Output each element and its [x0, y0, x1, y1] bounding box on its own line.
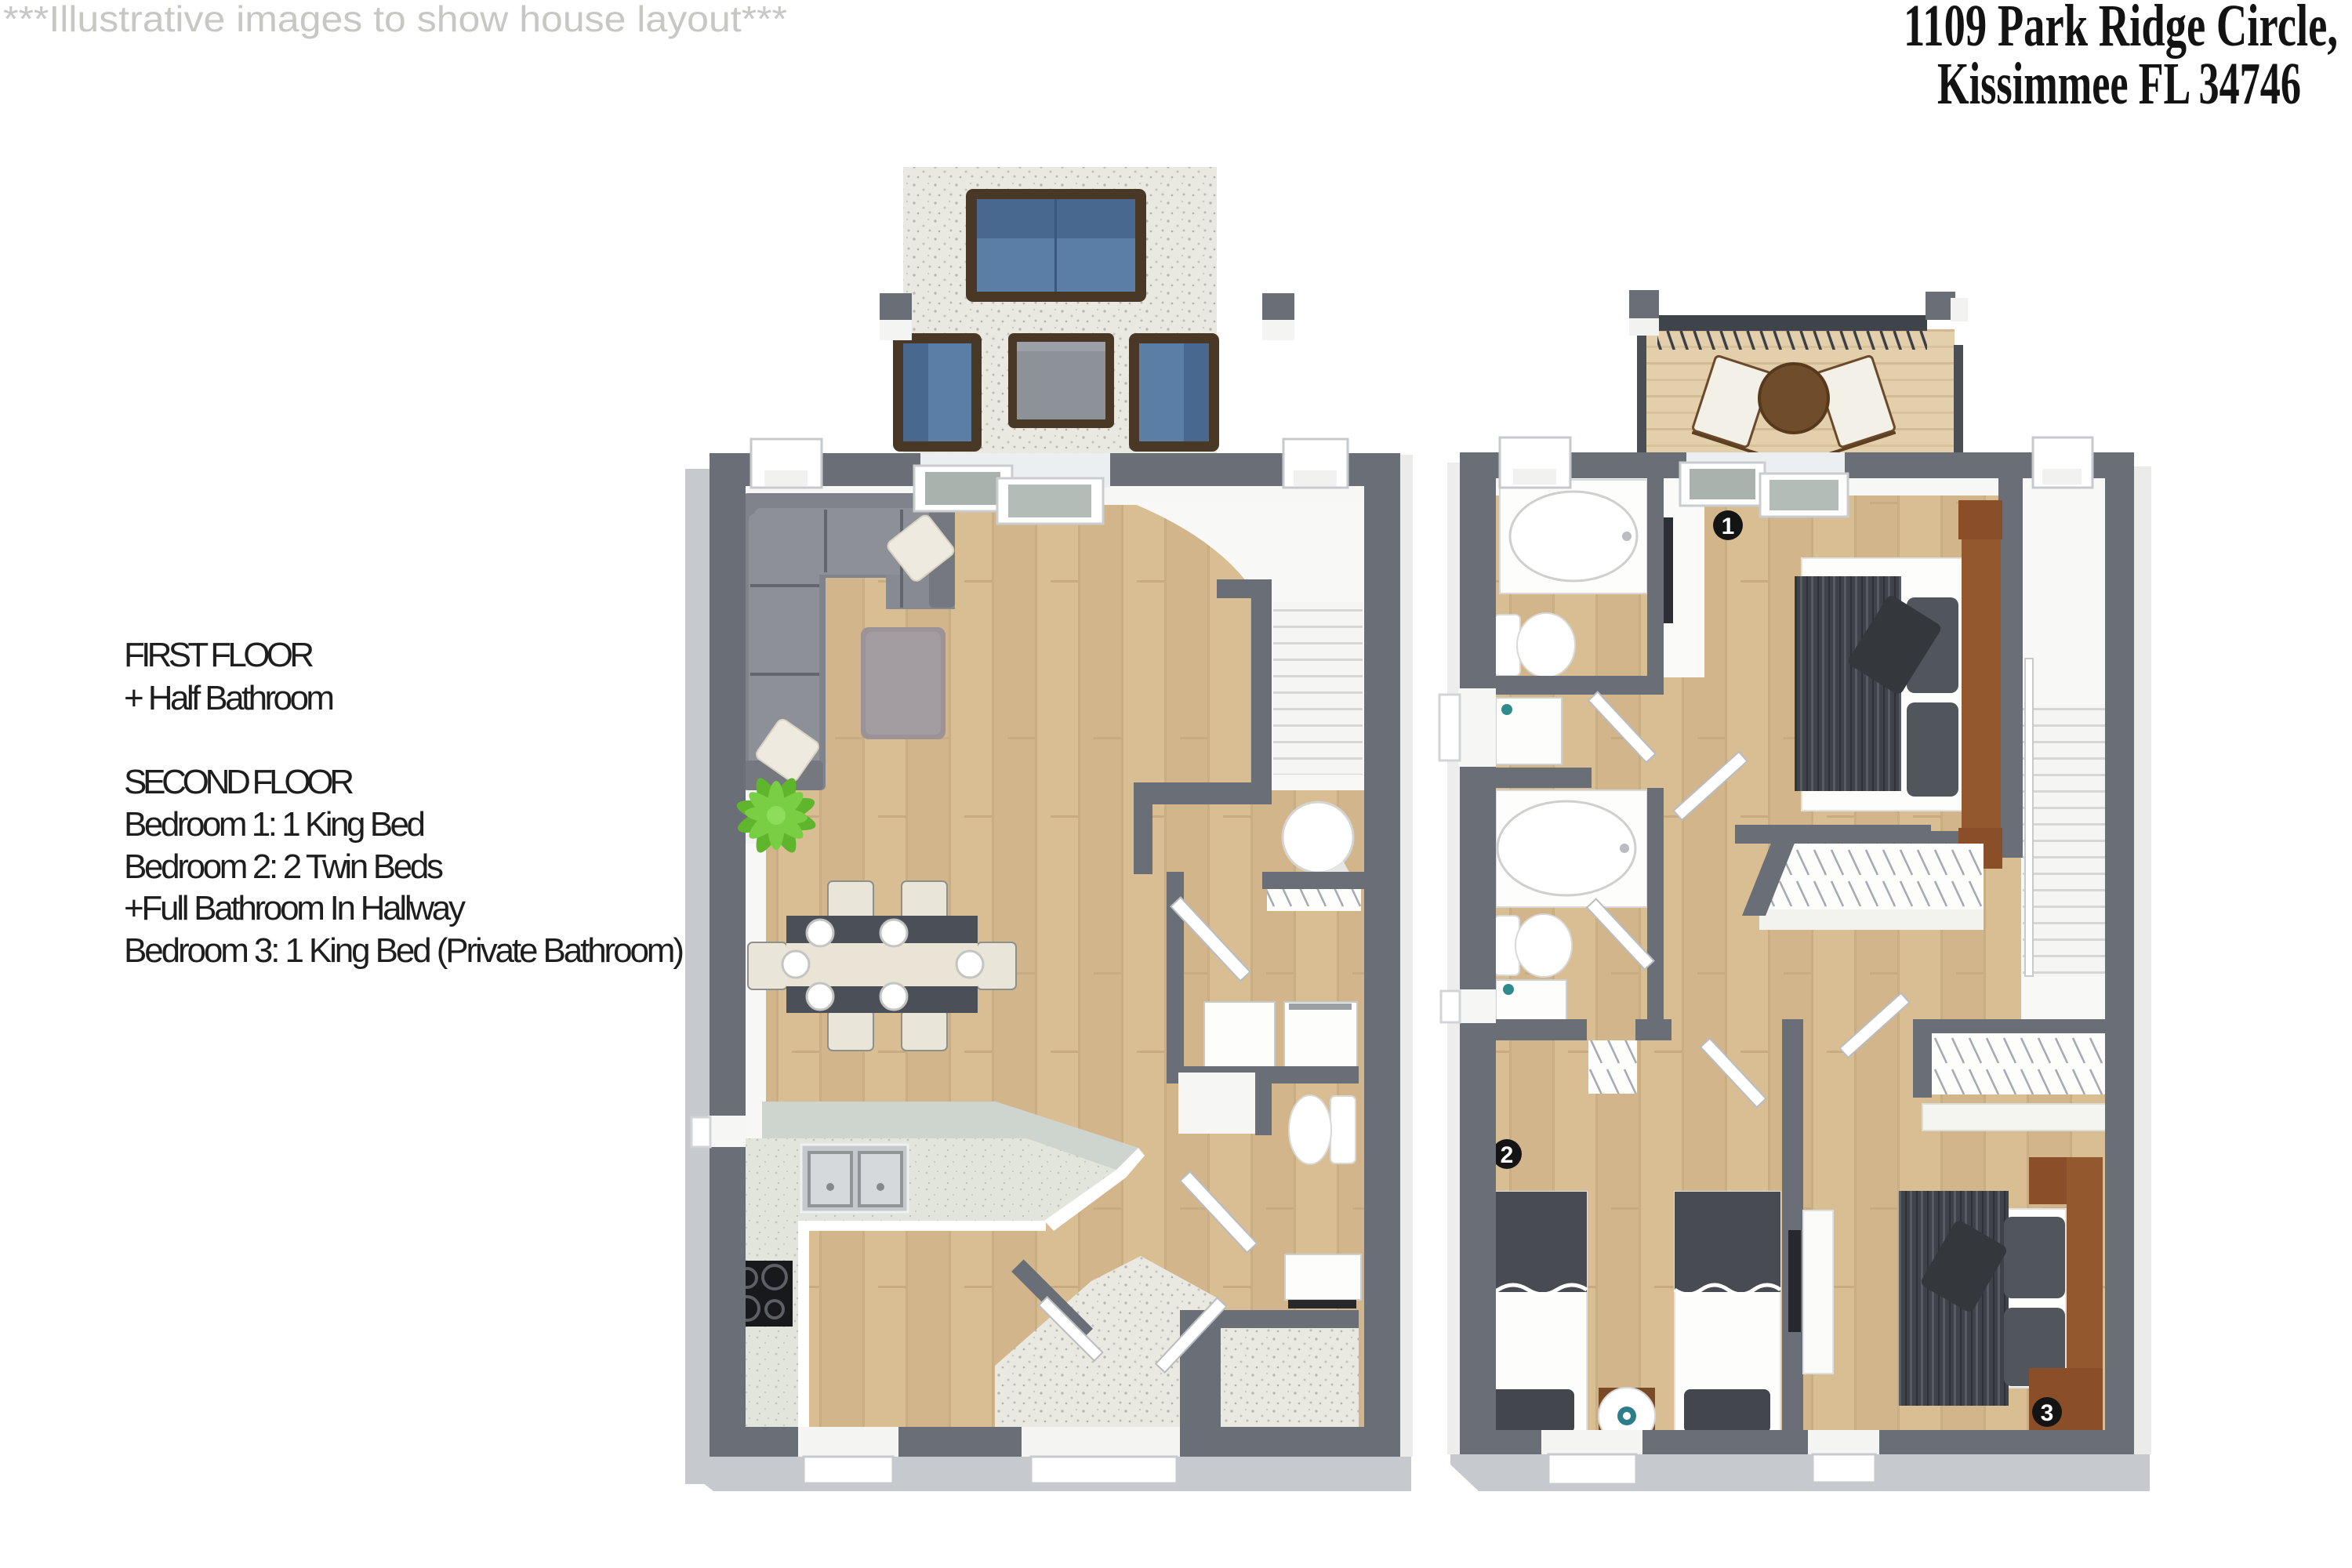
svg-text:SECOND FLOOR: SECOND FLOOR	[124, 763, 354, 801]
svg-text:3: 3	[2041, 1400, 2054, 1426]
svg-text:1: 1	[1722, 514, 1735, 539]
svg-text:1109 Park Ridge Circle,: 1109 Park Ridge Circle,	[1904, 0, 2338, 59]
svg-text:Bedroom 2: 2 Twin Beds: Bedroom 2: 2 Twin Beds	[124, 848, 444, 886]
svg-text:+Full Bathroom In Hallway: +Full Bathroom In Hallway	[124, 889, 466, 927]
svg-text:Bedroom 1: 1 King Bed: Bedroom 1: 1 King Bed	[124, 805, 426, 844]
svg-text:+ Half Bathroom: + Half Bathroom	[124, 679, 335, 717]
svg-text:2: 2	[1501, 1142, 1514, 1168]
svg-text:FIRST FLOOR: FIRST FLOOR	[124, 636, 314, 674]
svg-text:***Illustrative images to show: ***Illustrative images to show house lay…	[3, 0, 787, 39]
svg-text:Kissimmee FL 34746: Kissimmee FL 34746	[1937, 51, 2301, 117]
svg-text:Bedroom 3: 1 King Bed (Private: Bedroom 3: 1 King Bed (Private Bathroom)	[124, 931, 684, 970]
